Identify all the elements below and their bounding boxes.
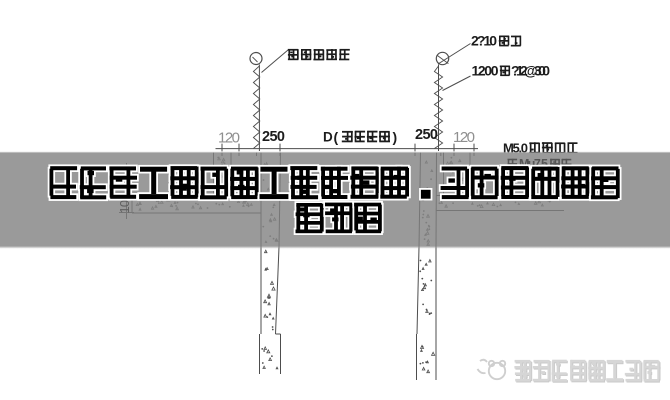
svg-text:250: 250 [415,127,438,143]
svg-text:): ) [393,129,398,145]
svg-text:2?10: 2?10 [471,33,497,49]
svg-text:1200: 1200 [472,63,499,79]
svg-text:120: 120 [218,130,240,147]
svg-text:(: ( [334,129,339,145]
svg-text:250: 250 [262,129,285,145]
svg-text:?12@300: ?12@300 [511,63,550,79]
svg-text:120: 120 [453,129,475,146]
svg-text:D: D [323,130,333,145]
